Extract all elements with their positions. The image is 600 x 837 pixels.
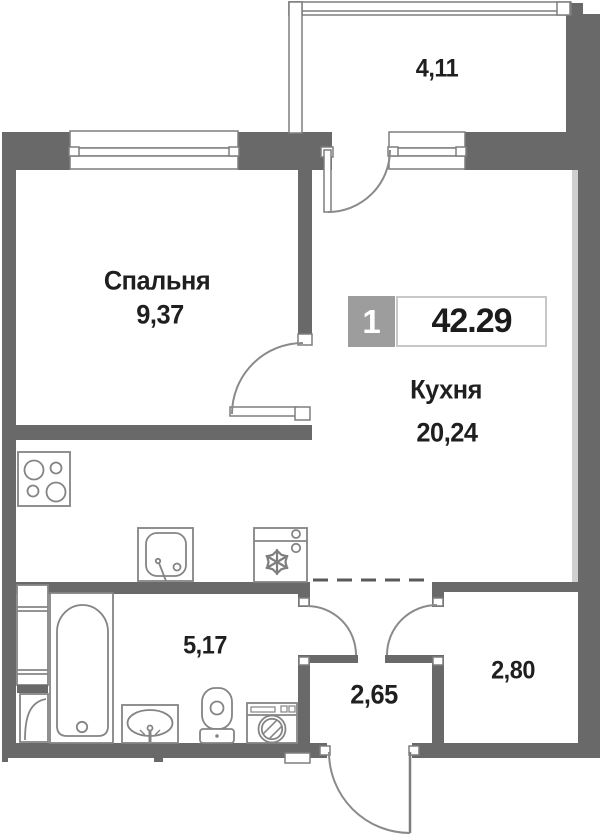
bathroom-door [307,606,356,655]
vent-shaft [17,585,48,742]
kitchen-sink [138,528,193,581]
toilet [200,688,234,743]
total-area-badge: 42.29 [396,296,547,347]
washbasin [122,705,178,743]
bedroom-label: Спальня [104,266,210,297]
kitchen-label: Кухня [410,375,482,406]
wardrobe-door [387,605,437,655]
bedroom-area-label: 9,37 [136,300,184,331]
entrance-door [329,752,410,833]
stove [18,452,70,506]
floor-plan-drawing [0,0,600,837]
bathtub [50,593,113,743]
hallway-area-label: 2,65 [350,680,398,711]
kitchen-area-label: 20,24 [416,418,477,449]
floor-plan: Спальня 9,37 Кухня 20,24 4,11 5,17 2,65 … [0,0,600,837]
wardrobe-area-label: 2,80 [491,657,535,686]
balcony-area-label: 4,11 [416,55,459,84]
apartment-number-badge: 1 [348,296,395,347]
bedroom-door [230,343,310,420]
balcony-door [321,147,390,212]
balcony-window [388,132,466,169]
bedroom-window [69,131,239,169]
apartment-badge: 1 42.29 [348,296,547,347]
bathroom-area-label: 5,17 [183,632,227,661]
